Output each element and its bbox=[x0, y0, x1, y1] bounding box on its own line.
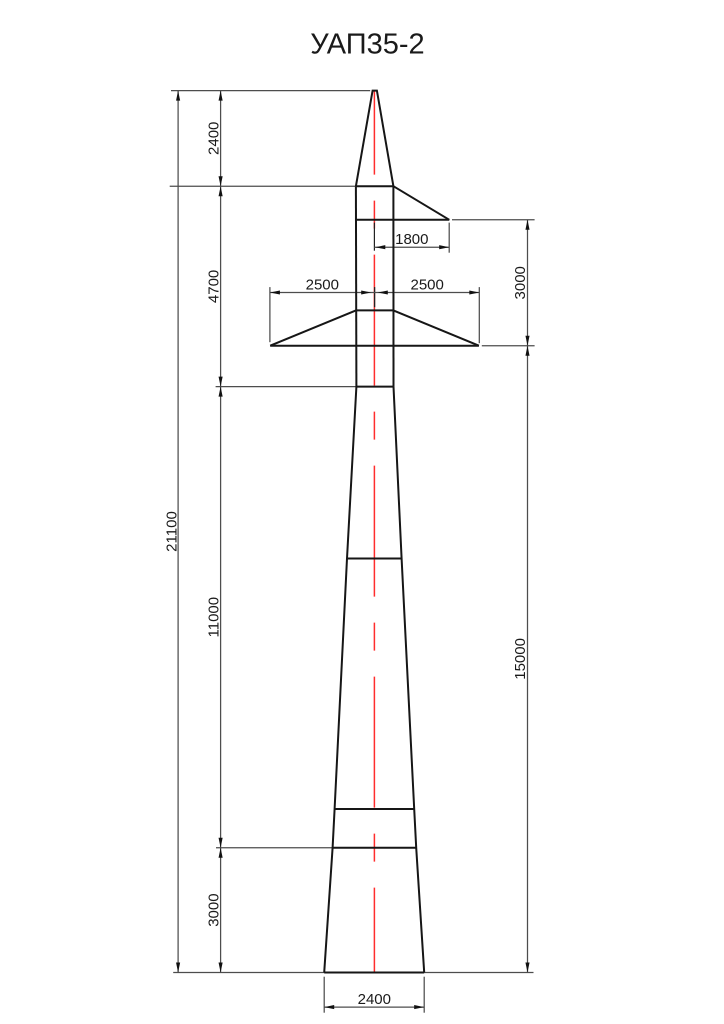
svg-text:2400: 2400 bbox=[358, 991, 391, 1008]
svg-text:1800: 1800 bbox=[395, 231, 428, 248]
svg-text:3000: 3000 bbox=[512, 266, 529, 299]
svg-text:2400: 2400 bbox=[205, 122, 222, 155]
svg-text:11000: 11000 bbox=[205, 597, 222, 638]
svg-text:4700: 4700 bbox=[205, 270, 222, 303]
svg-text:2500: 2500 bbox=[411, 276, 444, 293]
svg-text:УАП35-2: УАП35-2 bbox=[310, 29, 424, 61]
svg-text:2500: 2500 bbox=[306, 276, 339, 293]
svg-text:21100: 21100 bbox=[163, 511, 180, 552]
svg-text:15000: 15000 bbox=[512, 638, 529, 680]
svg-text:3000: 3000 bbox=[205, 893, 222, 926]
